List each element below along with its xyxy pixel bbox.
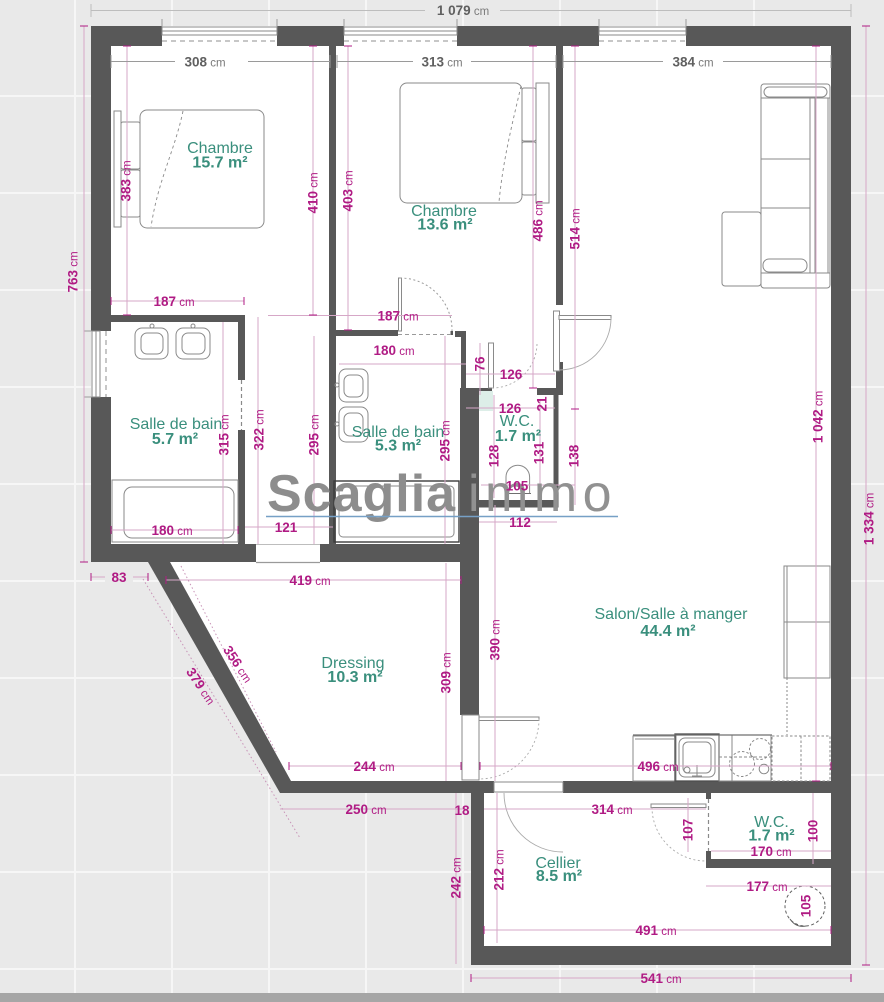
svg-text:Salon/Salle à manger: Salon/Salle à manger <box>595 606 749 623</box>
svg-text:1.7 m²: 1.7 m² <box>748 828 794 845</box>
svg-text:100: 100 <box>806 820 821 843</box>
svg-text:126: 126 <box>500 367 523 382</box>
svg-text:105: 105 <box>506 479 529 494</box>
svg-text:763 cm: 763 cm <box>66 251 81 292</box>
svg-text:314 cm: 314 cm <box>591 802 632 817</box>
svg-text:76: 76 <box>473 356 488 372</box>
svg-text:170 cm: 170 cm <box>750 844 791 859</box>
svg-text:112: 112 <box>509 515 531 530</box>
svg-text:83: 83 <box>111 570 127 585</box>
svg-text:308 cm: 308 cm <box>184 55 225 70</box>
svg-text:313 cm: 313 cm <box>421 55 462 70</box>
svg-text:177 cm: 177 cm <box>746 879 787 894</box>
svg-text:295 cm: 295 cm <box>307 414 322 455</box>
svg-text:250 cm: 250 cm <box>345 802 386 817</box>
svg-text:15.7 m²: 15.7 m² <box>192 155 247 172</box>
svg-text:5.7 m²: 5.7 m² <box>152 431 198 448</box>
svg-text:121: 121 <box>275 520 298 535</box>
svg-text:383 cm: 383 cm <box>119 160 134 201</box>
svg-text:Scagliaimmo: Scagliaimmo <box>267 465 617 523</box>
svg-text:403 cm: 403 cm <box>341 170 356 211</box>
svg-text:410 cm: 410 cm <box>306 172 321 213</box>
svg-text:18: 18 <box>454 803 470 818</box>
svg-text:13.6 m²: 13.6 m² <box>417 217 472 234</box>
svg-text:138: 138 <box>567 444 582 467</box>
svg-text:212 cm: 212 cm <box>492 849 507 890</box>
svg-text:180 cm: 180 cm <box>151 523 192 538</box>
svg-text:105: 105 <box>799 894 814 917</box>
svg-text:315 cm: 315 cm <box>217 414 232 455</box>
svg-text:496 cm: 496 cm <box>637 759 678 774</box>
svg-text:187 cm: 187 cm <box>153 294 194 309</box>
svg-text:322 cm: 322 cm <box>252 409 267 450</box>
svg-text:384 cm: 384 cm <box>672 55 713 70</box>
svg-text:10.3 m²: 10.3 m² <box>327 669 382 686</box>
svg-text:309 cm: 309 cm <box>439 652 454 693</box>
svg-text:295 cm: 295 cm <box>438 420 453 461</box>
svg-text:187 cm: 187 cm <box>377 309 418 324</box>
svg-text:8.5 m²: 8.5 m² <box>536 868 582 885</box>
svg-text:1 334 cm: 1 334 cm <box>862 493 877 545</box>
svg-text:242 cm: 242 cm <box>449 857 464 898</box>
svg-text:107: 107 <box>681 819 696 842</box>
svg-text:21: 21 <box>535 396 550 412</box>
svg-text:128: 128 <box>487 444 502 467</box>
svg-text:131: 131 <box>532 441 547 464</box>
svg-text:180 cm: 180 cm <box>373 343 414 358</box>
svg-text:419 cm: 419 cm <box>289 573 330 588</box>
svg-text:126: 126 <box>499 401 522 416</box>
svg-text:486 cm: 486 cm <box>531 200 546 241</box>
svg-text:491 cm: 491 cm <box>635 923 676 938</box>
svg-text:1 079 cm: 1 079 cm <box>437 3 489 18</box>
svg-text:244 cm: 244 cm <box>353 759 394 774</box>
svg-text:541 cm: 541 cm <box>640 971 681 986</box>
svg-text:390 cm: 390 cm <box>488 619 503 660</box>
svg-text:44.4 m²: 44.4 m² <box>640 623 695 640</box>
svg-text:514 cm: 514 cm <box>568 208 583 249</box>
svg-text:5.3 m²: 5.3 m² <box>375 438 421 455</box>
svg-text:1 042 cm: 1 042 cm <box>811 391 826 443</box>
